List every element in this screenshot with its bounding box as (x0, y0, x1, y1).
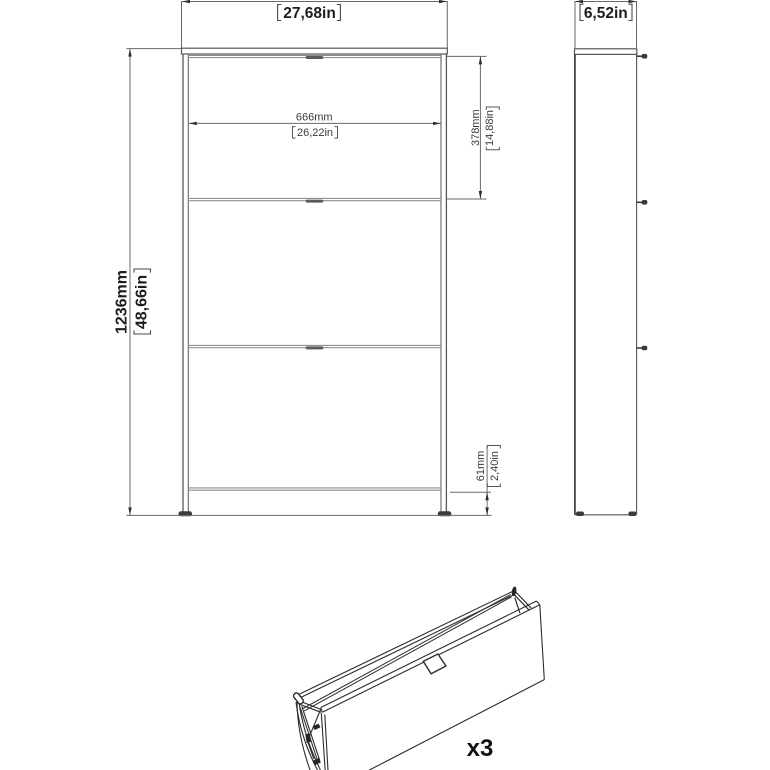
svg-text:2,40in: 2,40in (489, 451, 501, 481)
svg-text:14,88in: 14,88in (484, 110, 496, 146)
svg-text:26,22in: 26,22in (297, 127, 333, 139)
svg-text:48,66in: 48,66in (134, 275, 151, 329)
svg-text:x3: x3 (467, 735, 494, 762)
svg-text:1236mm: 1236mm (114, 270, 131, 334)
svg-text:61mm: 61mm (475, 451, 487, 482)
svg-text:378mm: 378mm (470, 109, 482, 146)
svg-text:6,52in: 6,52in (584, 5, 628, 22)
svg-text:27,68in: 27,68in (283, 5, 336, 22)
svg-text:666mm: 666mm (296, 112, 333, 124)
